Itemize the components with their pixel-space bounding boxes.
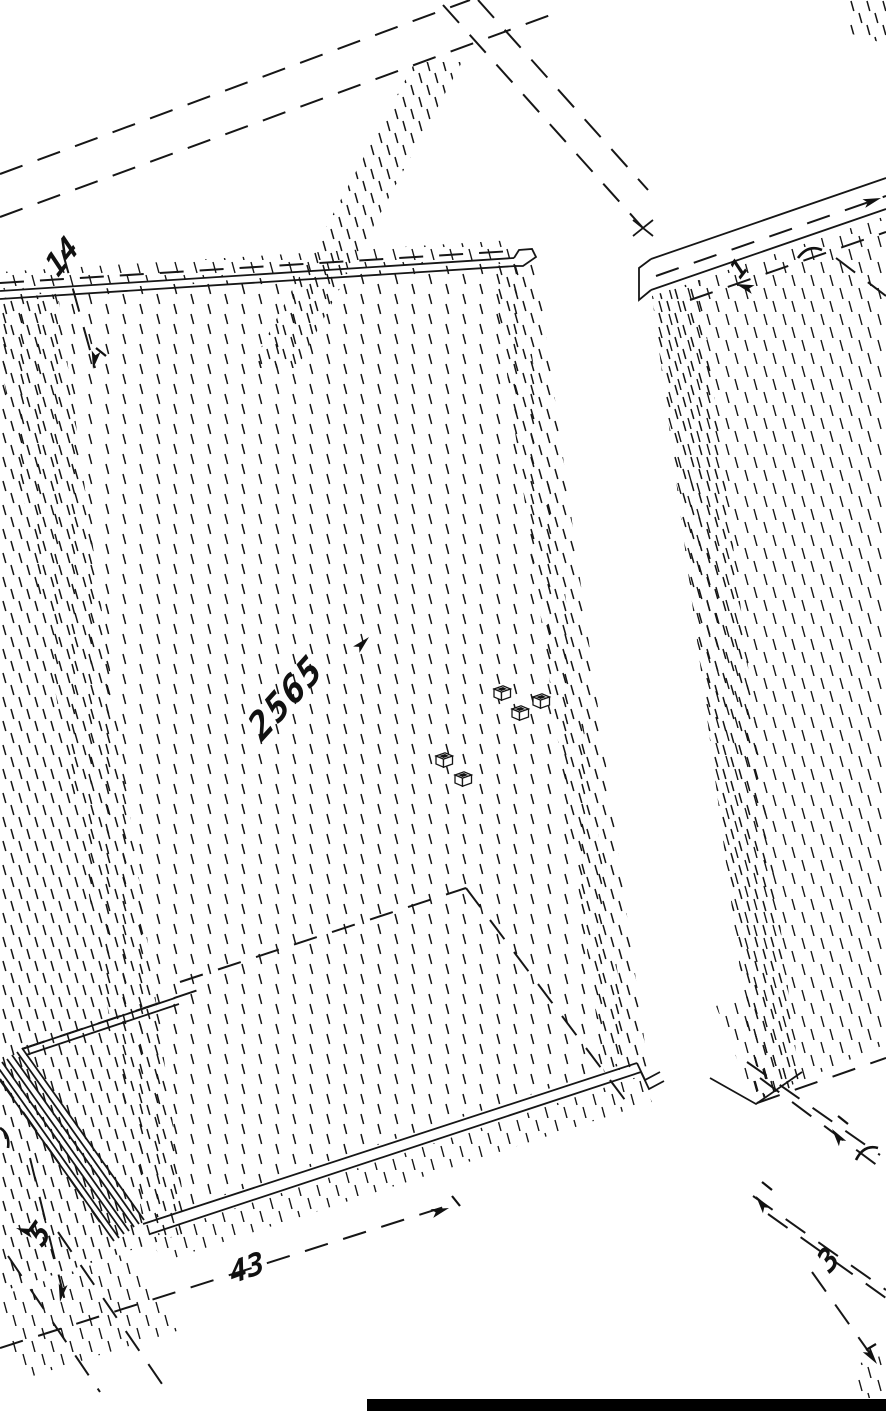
scale-bar <box>367 1399 886 1411</box>
phantom-descending-line-1 <box>443 5 643 228</box>
arrowhead <box>862 194 882 208</box>
peg-icon <box>533 694 550 708</box>
dim-line-right-1b <box>760 1078 886 1172</box>
hatch-fields <box>0 0 886 1398</box>
isometric-drawing: 14 2565 1 5 43 3 <box>0 0 886 1411</box>
peg-icon <box>512 706 529 720</box>
top-right-corner-hatch <box>840 0 886 44</box>
dim-tick <box>452 1196 460 1206</box>
dimension-label-43: 43 <box>226 1245 267 1292</box>
dimension-label-3: 3 <box>811 1240 847 1280</box>
phantom-top-line-2 <box>0 14 553 217</box>
dim-tick <box>866 1344 876 1350</box>
cad-drawing-canvas: 14 2565 1 5 43 3 <box>0 0 886 1411</box>
arrowhead <box>430 1204 450 1218</box>
peg-icon <box>455 772 472 786</box>
peg-icon <box>436 753 453 767</box>
extension-cross-mark <box>633 220 653 236</box>
peg-icon <box>494 686 511 700</box>
phantom-descending-line-2 <box>478 0 648 190</box>
bottom-right-hatch <box>852 1354 886 1398</box>
rail-left-cap <box>639 259 651 300</box>
dim-tick <box>838 1116 848 1124</box>
arrowhead <box>828 1126 846 1146</box>
dim-tick <box>762 1182 772 1190</box>
